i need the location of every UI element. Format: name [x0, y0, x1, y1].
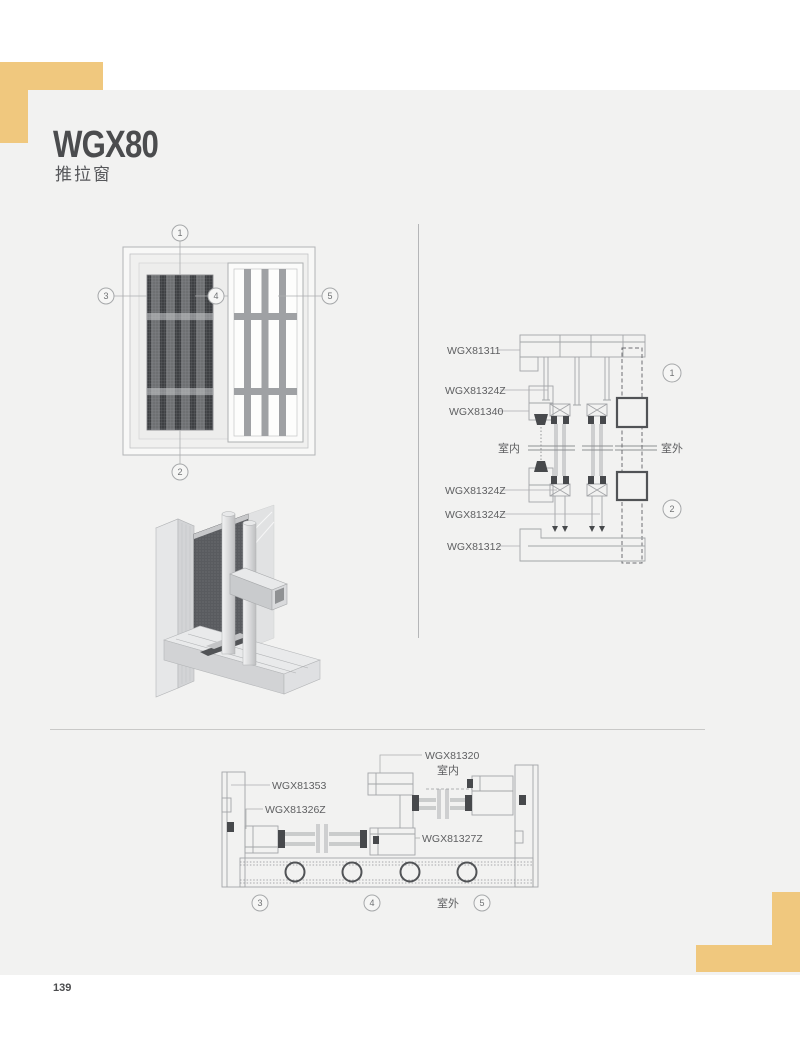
mullion-square-top — [617, 398, 647, 427]
page-subtitle: 推拉窗 — [55, 160, 112, 185]
outer-sash-section — [245, 823, 415, 855]
callout-5: 5 — [322, 288, 338, 304]
inner-sash-section — [368, 773, 513, 828]
callout-1-number: 1 — [177, 228, 182, 238]
jamb-profile-right — [515, 765, 538, 887]
label-wgx81340: WGX81340 — [449, 406, 503, 418]
interlock-pocket-bottom — [529, 461, 553, 502]
mullion-square-bottom — [617, 472, 647, 500]
interlock-pocket-top — [529, 386, 553, 466]
horizontal-section-labels: WGX81320 室内 WGX81353 WGX81326Z WGX81327Z… — [265, 750, 483, 910]
catalog-page: { "page": { "title": "WGX80", "subtitle"… — [0, 0, 800, 1043]
section-callout-3: 3 — [252, 895, 268, 911]
head-track-fins — [542, 357, 611, 405]
jamb-dashed-profile — [617, 348, 647, 563]
indoor-label-bottom: 室内 — [437, 763, 459, 777]
sash-section-right — [587, 404, 607, 532]
page-number: 139 — [53, 982, 71, 994]
section-callout-3-number: 3 — [257, 898, 262, 908]
section-callout-1: 1 — [663, 364, 681, 382]
vertical-section-drawing: WGX81311 WGX81324Z WGX81340 WGX81324Z WG… — [445, 328, 695, 568]
sill-track-section — [240, 858, 533, 887]
sliding-sash-screen-panel — [147, 275, 213, 430]
callout-4: 4 — [208, 288, 224, 304]
callout-3-number: 3 — [103, 291, 108, 301]
section-callout-1-number: 1 — [669, 368, 674, 378]
section-break-lines — [528, 446, 657, 450]
label-wgx81311: WGX81311 — [447, 345, 501, 357]
jamb-profile-left — [222, 772, 245, 887]
label-wgx81324z-low: WGX81324Z — [445, 509, 506, 521]
label-wgx81324z-mid: WGX81324Z — [445, 485, 506, 497]
sliding-sash-glass-panel — [228, 263, 303, 442]
section-callout-5-number: 5 — [479, 898, 484, 908]
horizontal-divider-line — [50, 729, 705, 730]
callout-2: 2 — [172, 464, 188, 480]
corner-accent-top-left-vertical — [0, 62, 28, 143]
isometric-profile-drawing — [148, 490, 358, 705]
label-wgx81326z: WGX81326Z — [265, 804, 326, 816]
vertical-section-callouts: 1 2 — [663, 364, 681, 518]
callout-2-number: 2 — [177, 467, 182, 477]
horizontal-section-drawing: WGX81320 室内 WGX81353 WGX81326Z WGX81327Z… — [210, 743, 550, 918]
page-title-text: WGX80 — [53, 126, 158, 164]
section-callout-2-number: 2 — [669, 504, 674, 514]
section-callout-4: 4 — [364, 895, 380, 911]
label-wgx81327z: WGX81327Z — [422, 833, 483, 845]
section-callout-4-number: 4 — [369, 898, 374, 908]
indoor-label: 室内 — [498, 441, 520, 455]
callout-3: 3 — [98, 288, 114, 304]
label-wgx81320: WGX81320 — [425, 750, 479, 762]
label-wgx81324z-top: WGX81324Z — [445, 385, 506, 397]
callout-5-number: 5 — [327, 291, 332, 301]
track-screw-chambers — [286, 863, 477, 882]
sill-profile-section — [520, 529, 645, 561]
callout-4-number: 4 — [213, 291, 218, 301]
head-profile — [520, 335, 645, 371]
outdoor-label-bottom: 室外 — [437, 896, 459, 910]
vertical-divider-line — [418, 224, 419, 638]
callout-1: 1 — [172, 225, 188, 241]
vertical-section-labels: WGX81311 WGX81324Z WGX81340 WGX81324Z WG… — [445, 345, 683, 553]
label-wgx81353: WGX81353 — [272, 780, 326, 792]
section-callout-5: 5 — [474, 895, 490, 911]
label-wgx81312: WGX81312 — [447, 541, 501, 553]
corner-accent-bottom-right-vertical — [772, 892, 800, 972]
outdoor-label: 室外 — [661, 441, 683, 455]
page-title: WGX80 — [53, 126, 181, 164]
elevation-drawing: 1 2 3 4 5 — [95, 218, 345, 484]
frame-column — [156, 519, 194, 697]
section-callout-2: 2 — [663, 500, 681, 518]
